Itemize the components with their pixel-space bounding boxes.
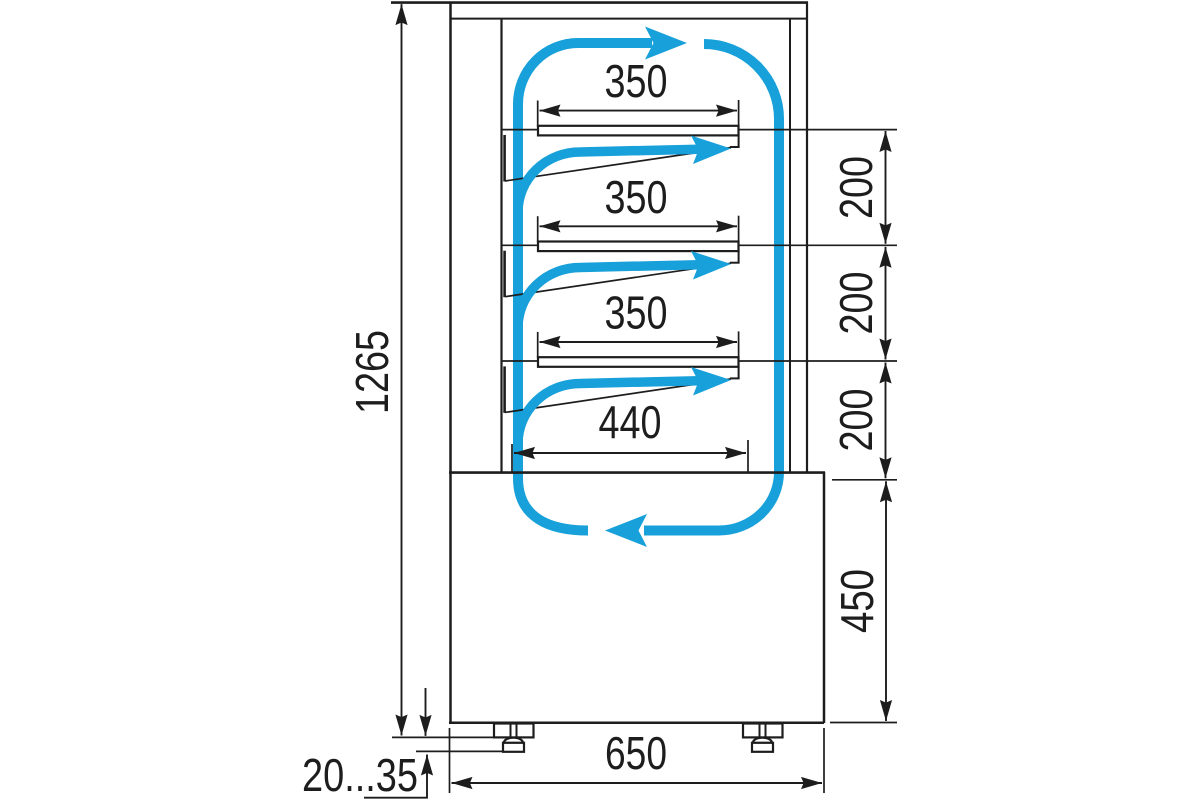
svg-text:350: 350 [605, 55, 668, 107]
svg-text:350: 350 [605, 171, 668, 223]
svg-text:1265: 1265 [346, 330, 398, 414]
svg-text:350: 350 [605, 287, 668, 339]
svg-text:450: 450 [831, 569, 883, 633]
svg-text:200: 200 [830, 156, 882, 219]
svg-text:200: 200 [830, 272, 882, 335]
svg-text:20...35: 20...35 [302, 749, 418, 800]
svg-text:200: 200 [830, 389, 882, 452]
svg-text:650: 650 [605, 727, 667, 779]
svg-text:440: 440 [599, 396, 662, 448]
